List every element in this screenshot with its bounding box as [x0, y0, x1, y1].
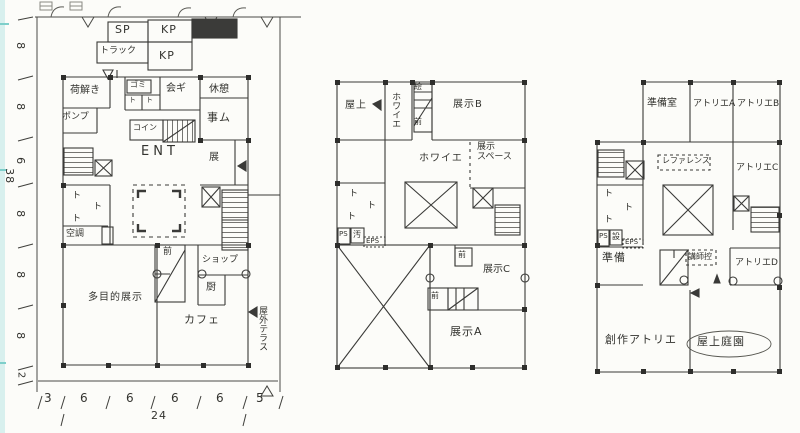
elevator-x-box: [626, 161, 644, 179]
dim-bottom-0: 3: [44, 392, 53, 405]
column-plate-icon: [138, 191, 180, 231]
room-label-hvac: 空調: [66, 229, 84, 239]
room-label-roof: 屋上: [345, 100, 367, 111]
sketch-linework: [0, 0, 800, 433]
room-label-art-storage: 絵: [414, 83, 422, 92]
room-label-prep-room: 準備室: [647, 98, 677, 109]
room-label-atelier-a: アトリエA: [693, 99, 735, 109]
stairs-hatch: [751, 207, 779, 232]
room-label-creative-atelier: 創作アトリエ: [605, 334, 677, 346]
room-label-atelier-b: アトリエB: [737, 99, 779, 109]
room-label-lecturer: 講師控: [688, 253, 712, 262]
plan3-linework: [595, 80, 782, 374]
dark-block: [192, 19, 237, 38]
room-label-anteroom-c: 前: [458, 251, 466, 260]
room-label-exhibit-a: 展示A: [450, 326, 483, 338]
dim-left-2: 6: [14, 157, 26, 165]
shaft-box: [102, 227, 113, 244]
room-label-foyer-vertical: ホワイエ: [390, 92, 400, 128]
room-label-prep: 準備: [602, 252, 626, 264]
room-label-exhibit-b: 展示B: [453, 99, 483, 110]
toilet-mark: ト: [72, 214, 81, 224]
dim-bottom-total: 24: [151, 410, 167, 422]
stairs-hatch: [64, 148, 93, 175]
toilet-mark: ト: [72, 191, 81, 201]
toilet-mark: ト: [93, 202, 102, 212]
void-x: [405, 182, 457, 228]
room-label-foyer: ホワイエ: [419, 153, 463, 164]
void-dashed-square: [133, 185, 185, 237]
arrow-left-icon: [238, 161, 246, 171]
room-label-exhibit: 展: [209, 152, 219, 163]
grid-arc-icon: [51, 7, 246, 17]
room-label-terrace: 屋外テラス: [257, 306, 267, 351]
room-label-rest: 休憩: [209, 84, 229, 95]
corner-registration-icon: [40, 2, 82, 10]
dim-bottom-2: 6: [126, 392, 135, 405]
plan1-linework: [61, 19, 280, 368]
column-circle: [198, 270, 206, 278]
room-label-sp: SP: [115, 24, 131, 36]
arrow-left-icon: [691, 289, 699, 297]
stairs-hatch: [598, 150, 624, 177]
room-label-kitchen: 厨: [206, 282, 216, 293]
shaft-label-eps: EPS: [366, 238, 379, 246]
room-label-anteroom: 前: [163, 247, 172, 257]
room-label-shop: ショップ: [202, 255, 238, 265]
shaft-label-equip: 設: [612, 233, 620, 242]
dim-bottom-3: 6: [171, 392, 180, 405]
void-x: [337, 245, 430, 368]
column-circle: [774, 277, 782, 285]
elevator-x-box: [734, 196, 749, 211]
toilet-mark: ト: [367, 201, 376, 211]
toilet-mark: ト: [624, 203, 633, 213]
room-label-atelier-c: アトリエC: [736, 163, 778, 173]
column-circle: [242, 270, 250, 278]
room-label-entrance: ENT: [141, 145, 179, 160]
stairs-hatch: [495, 205, 520, 235]
room-label-coin: コイン: [133, 124, 157, 133]
dim-left-0: 8: [14, 42, 26, 50]
room-label-anteroom-upper: 前: [414, 118, 422, 127]
arrow-left-icon: [373, 100, 381, 110]
elevator-x-box: [202, 187, 220, 207]
room-label-roof-garden: 屋上庭園: [697, 336, 745, 348]
dim-left-3: 8: [14, 210, 26, 218]
shaft-label-ps: PS: [599, 233, 608, 241]
dim-left-6: 2: [15, 372, 26, 379]
room-label-truck: トラック: [100, 46, 136, 56]
room-label-reference: レファレンス: [662, 157, 710, 166]
room-label-pump: ポンプ: [62, 112, 89, 122]
dim-bottom-5: 5: [256, 392, 265, 405]
toilet-mark: ト: [347, 212, 356, 222]
room-label-office: 事ム: [207, 112, 231, 124]
room-label-exhibit-c: 展示C: [483, 264, 510, 275]
toilet-mark: ト: [129, 97, 136, 105]
room-label-cafe: カフェ: [184, 314, 220, 326]
floorplan-sketch-sheet: SP トラック KP KP 荷解き ゴミ 会ギ 休憩 事ム ポンプ コイン EN…: [0, 0, 800, 433]
shaft-label-ps: PS: [339, 231, 348, 239]
room-label-exhibit-space: 展示 スペース: [477, 142, 512, 162]
scan-edge: [0, 0, 9, 433]
dim-left-1: 8: [14, 103, 26, 111]
toilet-mark: ト: [349, 189, 358, 199]
void-x: [663, 185, 713, 235]
dim-bottom-1: 6: [80, 392, 89, 405]
room-label-multipurpose: 多目的展示: [88, 292, 143, 303]
room-label-atelier-d: アトリエD: [735, 258, 778, 268]
room-label-trash: ゴミ: [130, 81, 146, 90]
toilet-mark: ト: [146, 97, 153, 105]
arrow-up-icon: [714, 275, 720, 283]
room-label-meeting: 会ギ: [166, 83, 186, 94]
toilet-mark: ト: [604, 189, 613, 199]
elevator-x-box: [473, 188, 493, 208]
room-label-kp1: KP: [161, 24, 177, 36]
dim-left-total: 38: [3, 168, 15, 184]
shaft-label-slop: 汚: [353, 231, 361, 240]
arrow-left-icon: [249, 307, 257, 317]
room-label-unloading: 荷解き: [70, 85, 100, 96]
plan2-linework: [335, 80, 529, 370]
shaft-label-eps: EPS: [625, 239, 638, 247]
toilet-mark: ト: [604, 215, 613, 225]
dim-left-5: 8: [14, 332, 26, 340]
room-label-anteroom-a: 前: [431, 292, 439, 301]
room-label-kp2: KP: [159, 50, 175, 62]
column-circle: [680, 276, 688, 284]
dim-bottom-4: 6: [216, 392, 225, 405]
elevator-x-box: [95, 160, 112, 176]
dim-left-4: 8: [14, 271, 26, 279]
